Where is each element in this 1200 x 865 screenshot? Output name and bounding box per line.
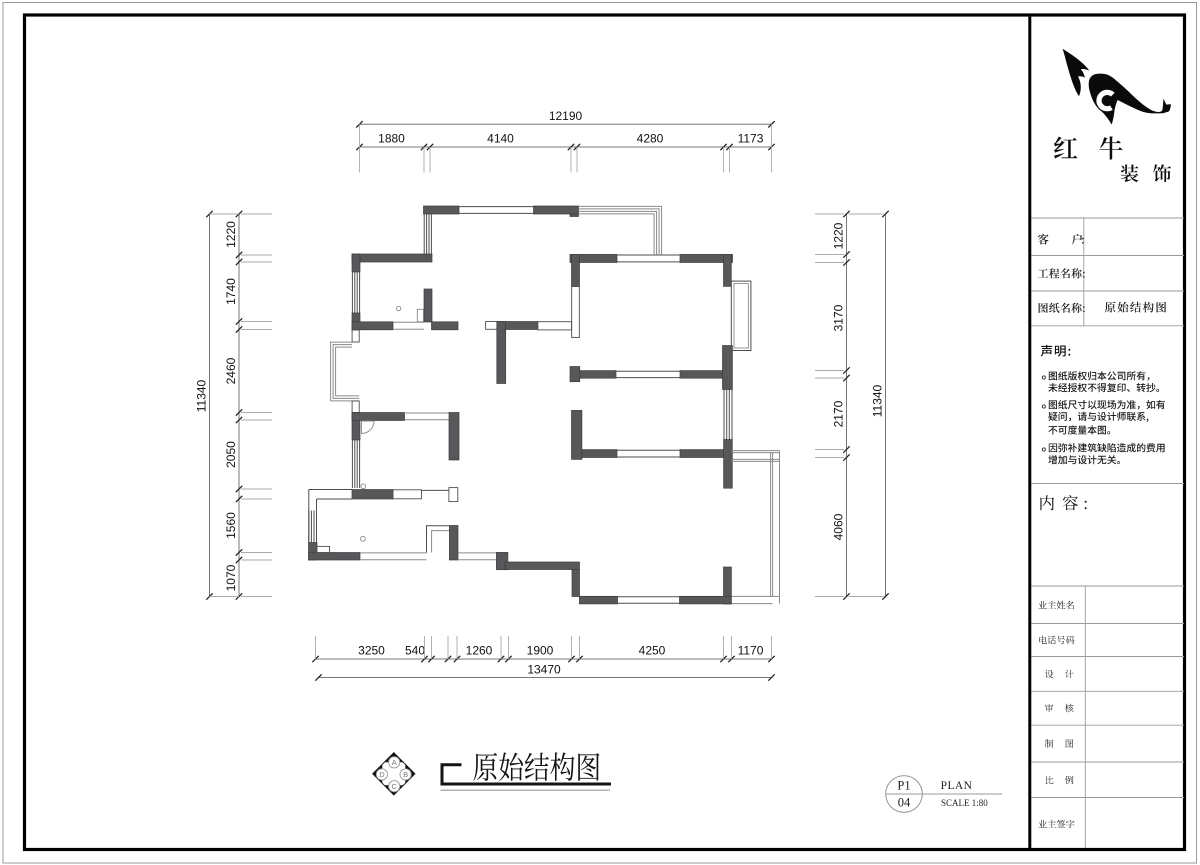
svg-text:3250: 3250 <box>358 644 385 658</box>
svg-text:1260: 1260 <box>466 644 493 658</box>
svg-text:540: 540 <box>405 644 425 658</box>
svg-text:P1: P1 <box>897 779 910 793</box>
svg-text:2170: 2170 <box>831 400 845 427</box>
svg-text:1173: 1173 <box>738 132 764 146</box>
svg-text:3170: 3170 <box>831 304 845 331</box>
svg-text:1740: 1740 <box>224 278 238 305</box>
svg-text:11340: 11340 <box>870 384 884 417</box>
svg-text:1070: 1070 <box>224 564 238 591</box>
svg-text:4250: 4250 <box>639 644 666 658</box>
svg-text:1220: 1220 <box>224 221 238 248</box>
svg-text:11340: 11340 <box>195 379 209 412</box>
svg-text:2460: 2460 <box>224 357 238 384</box>
svg-text:A: A <box>392 758 397 767</box>
svg-text:D: D <box>379 770 385 779</box>
svg-text:SCALE 1:80: SCALE 1:80 <box>941 798 988 808</box>
svg-text:C: C <box>391 782 397 791</box>
svg-text:04: 04 <box>898 796 911 810</box>
svg-text:1900: 1900 <box>527 644 554 658</box>
svg-text:4060: 4060 <box>831 513 845 540</box>
svg-text:1560: 1560 <box>224 512 238 539</box>
svg-text:4140: 4140 <box>487 132 514 146</box>
svg-text:1880: 1880 <box>378 132 405 146</box>
svg-text:1170: 1170 <box>738 644 764 658</box>
svg-text:1220: 1220 <box>831 222 845 249</box>
svg-text:12190: 12190 <box>549 109 583 123</box>
svg-text:13470: 13470 <box>527 663 561 677</box>
svg-text:2050: 2050 <box>224 441 238 468</box>
svg-text:PLAN: PLAN <box>941 780 973 792</box>
svg-text:B: B <box>403 770 408 779</box>
svg-text:4280: 4280 <box>637 132 664 146</box>
